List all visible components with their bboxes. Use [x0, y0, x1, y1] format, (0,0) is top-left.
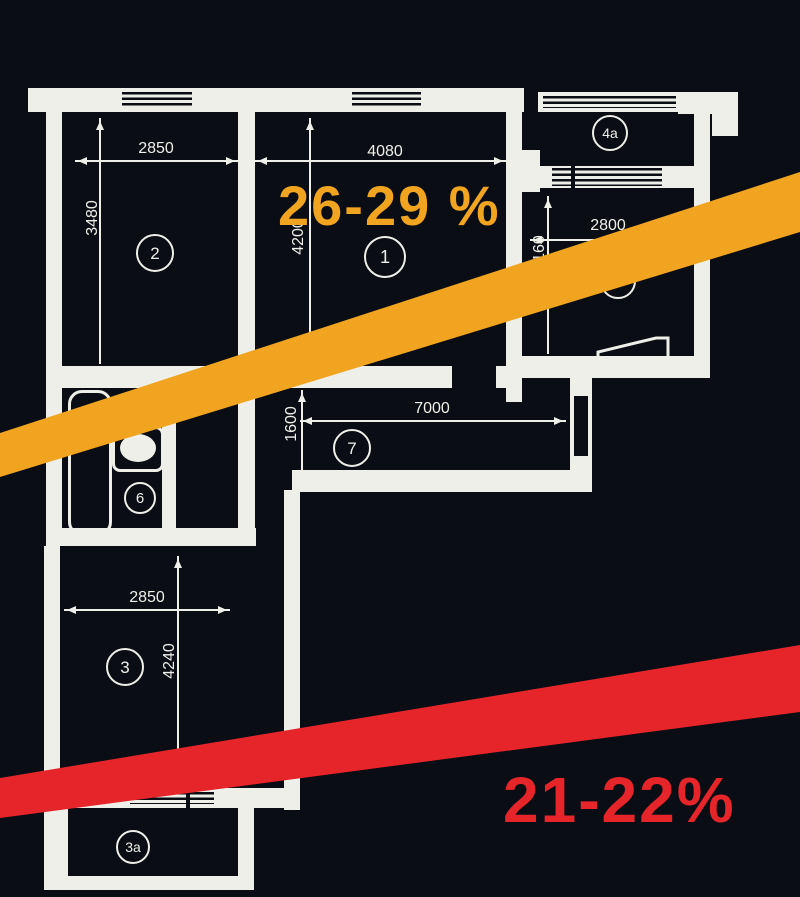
overlay-layer: [0, 0, 800, 897]
closet-room4: [598, 338, 668, 360]
red-percent-label: 21-22%: [503, 768, 736, 832]
floor-plan-poster: 2850 3480 4080 4200 2800 3160 7000 1600 …: [0, 0, 800, 897]
yellow-percent-label: 26-29 %: [278, 178, 501, 234]
